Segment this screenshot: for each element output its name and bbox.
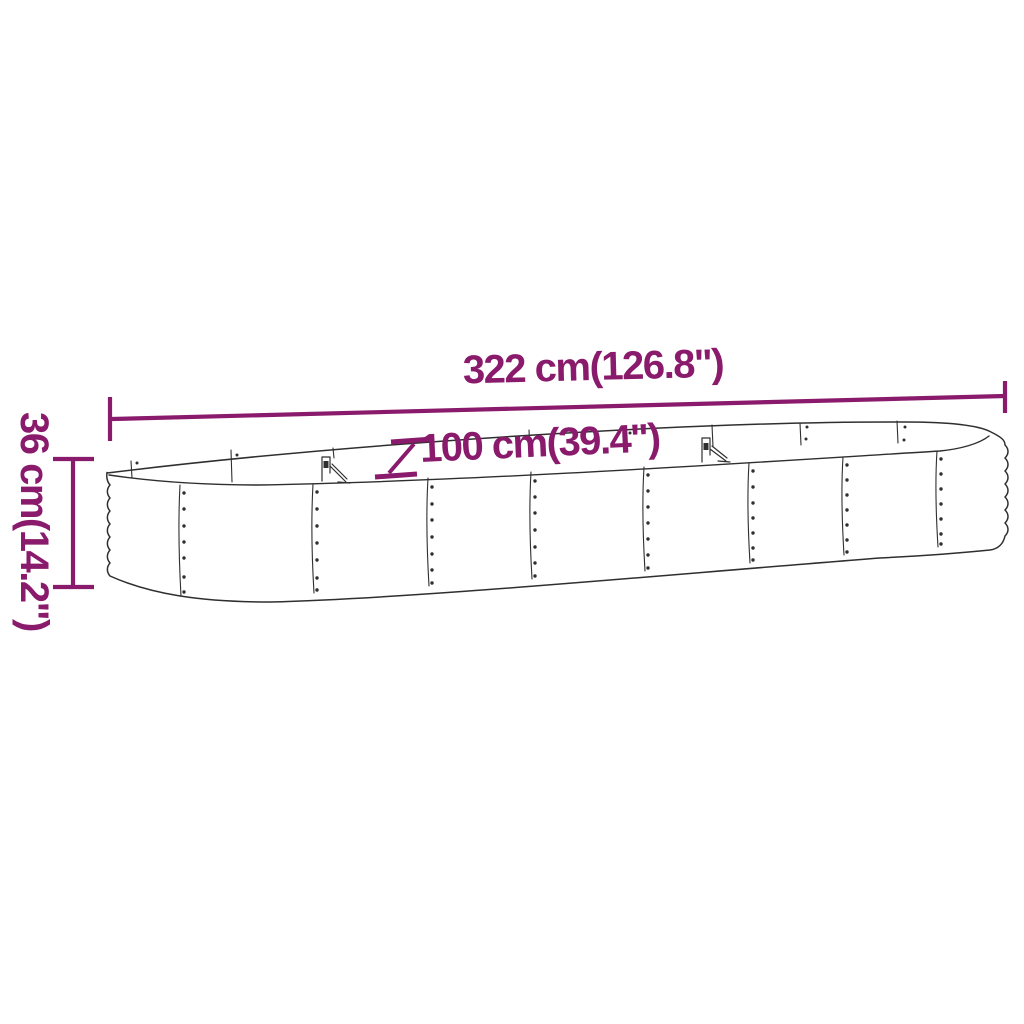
corner-brace-right <box>702 438 730 462</box>
corner-brace-left <box>322 457 350 483</box>
planter-drawing <box>0 0 1024 1024</box>
front-panel-seams <box>179 451 938 596</box>
dimension-diagram: 322 cm(126.8") 100 cm(39.4") 36 cm(14.2"… <box>0 0 1024 1024</box>
length-dimension-label: 322 cm(126.8") <box>447 340 738 394</box>
height-dimension-label: 36 cm(14.2") <box>11 412 57 631</box>
height-dimension-line <box>53 459 94 587</box>
